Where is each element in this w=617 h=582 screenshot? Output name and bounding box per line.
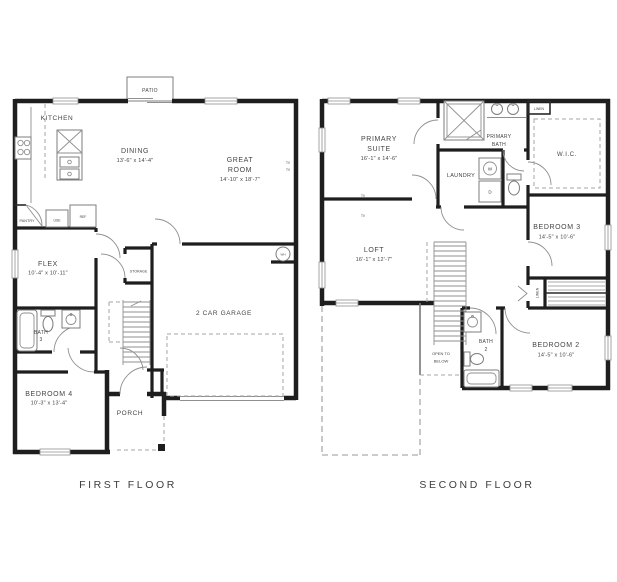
open-to-below-label-2: BELOW <box>434 359 449 364</box>
flex-label: FLEX <box>38 261 58 268</box>
garage-area <box>167 247 290 396</box>
dining-label: DINING <box>121 148 149 155</box>
toilet-icon <box>41 310 55 332</box>
double-sink-icon <box>487 104 526 118</box>
great-room-label-2: ROOM <box>228 167 252 174</box>
pantry-label: PANTRY <box>19 219 35 223</box>
window <box>548 385 572 391</box>
window <box>205 98 237 104</box>
bath3-fixtures <box>17 310 80 351</box>
window <box>398 98 420 104</box>
primary-suite-label-2: SUITE <box>367 146 391 153</box>
tv-label: TV <box>286 168 291 172</box>
bifold-door <box>518 286 527 301</box>
window <box>40 449 70 455</box>
storage-label: STORAGE <box>130 270 148 274</box>
porch-label: PORCH <box>117 410 143 417</box>
kitchen-island <box>57 130 82 180</box>
great-room-label: GREAT <box>227 157 254 164</box>
window <box>53 98 78 104</box>
second-floor-labels: PRIMARY SUITE 16'-1" x 14'-6" PRIMARY BA… <box>356 107 581 491</box>
wic-label: W.I.C. <box>557 152 577 158</box>
flex-dims: 10'-4" x 10'-11" <box>28 271 68 277</box>
bedroom4-dims: 10'-3" x 13'-4" <box>31 401 68 407</box>
stove-icon <box>15 137 31 159</box>
kitchen-label: KITCHEN <box>41 115 74 122</box>
bedroom3-label: BEDROOM 3 <box>533 224 580 231</box>
window <box>605 336 611 360</box>
tv-label: TV <box>361 214 366 218</box>
washer-dryer-icons <box>479 158 501 202</box>
garage-label: 2 CAR GARAGE <box>196 310 252 317</box>
first-floor-title: FIRST FLOOR <box>79 479 177 491</box>
porch-edges <box>117 416 165 451</box>
window <box>319 262 325 288</box>
tv-label: TV <box>286 161 291 165</box>
porch-post <box>158 444 165 451</box>
patio-label: PATIO <box>142 88 158 94</box>
great-room-dims: 14'-10" x 18'-7" <box>220 177 260 183</box>
sink-icon <box>464 312 481 332</box>
bath3-label: BATH <box>34 330 48 336</box>
bath3-label-2: 3 <box>39 337 42 343</box>
bathtub-icon <box>464 370 499 387</box>
window <box>319 128 325 152</box>
window <box>336 300 358 306</box>
first-floor-stairs <box>109 300 150 365</box>
second-floor: PRIMARY SUITE 16'-1" x 14'-6" PRIMARY BA… <box>319 98 611 491</box>
open-to-below-label: OPEN TO <box>432 351 450 356</box>
primary-bath-label-2: BATH <box>492 142 506 148</box>
second-floor-title: SECOND FLOOR <box>419 479 534 491</box>
primary-suite-label: PRIMARY <box>361 136 397 143</box>
bedroom4-label: BEDROOM 4 <box>25 391 72 398</box>
open-to-below-area <box>322 306 462 455</box>
bath2-label-2: 2 <box>484 347 487 353</box>
primary-suite-dims: 16'-1" x 14'-6" <box>361 156 398 162</box>
linen-side-label: LINEN <box>536 287 540 298</box>
dining-dims: 13'-6" x 14'-4" <box>117 158 154 164</box>
floor-plan-page: PATIO KITCHEN DINING 13'-6" x 14'-4" GRE… <box>0 0 617 582</box>
bedroom2-label: BEDROOM 2 <box>532 342 579 349</box>
window <box>510 385 532 391</box>
linen-label: LINEN <box>534 107 545 111</box>
toilet-icon <box>507 174 521 195</box>
loft-dims: 16'-1" x 12'-7" <box>356 257 393 263</box>
cabinet-label: USE <box>54 219 62 223</box>
window <box>12 250 18 278</box>
bath2-label: BATH <box>479 339 493 345</box>
kitchen-counter <box>15 104 96 227</box>
first-floor: PATIO KITCHEN DINING 13'-6" x 14'-4" GRE… <box>12 77 298 491</box>
bedroom3-dims: 14'-5" x 10'-6" <box>539 235 576 241</box>
primary-bath-label: PRIMARY <box>487 134 512 140</box>
floor-plan-svg: PATIO KITCHEN DINING 13'-6" x 14'-4" GRE… <box>0 0 617 582</box>
window <box>605 225 611 250</box>
laundry-label: LAUNDRY <box>447 173 475 179</box>
window <box>328 98 350 104</box>
shower-icon <box>444 101 484 140</box>
toilet-icon <box>464 352 484 366</box>
loft-label: LOFT <box>364 247 384 254</box>
second-floor-stairs <box>427 242 466 345</box>
sink-icon <box>62 310 80 328</box>
wh-label: WH <box>281 253 286 257</box>
first-floor-interior-walls <box>15 205 296 398</box>
bedroom2-dims: 14'-5" x 10'-6" <box>538 353 575 359</box>
ref-label: REF <box>80 215 87 219</box>
